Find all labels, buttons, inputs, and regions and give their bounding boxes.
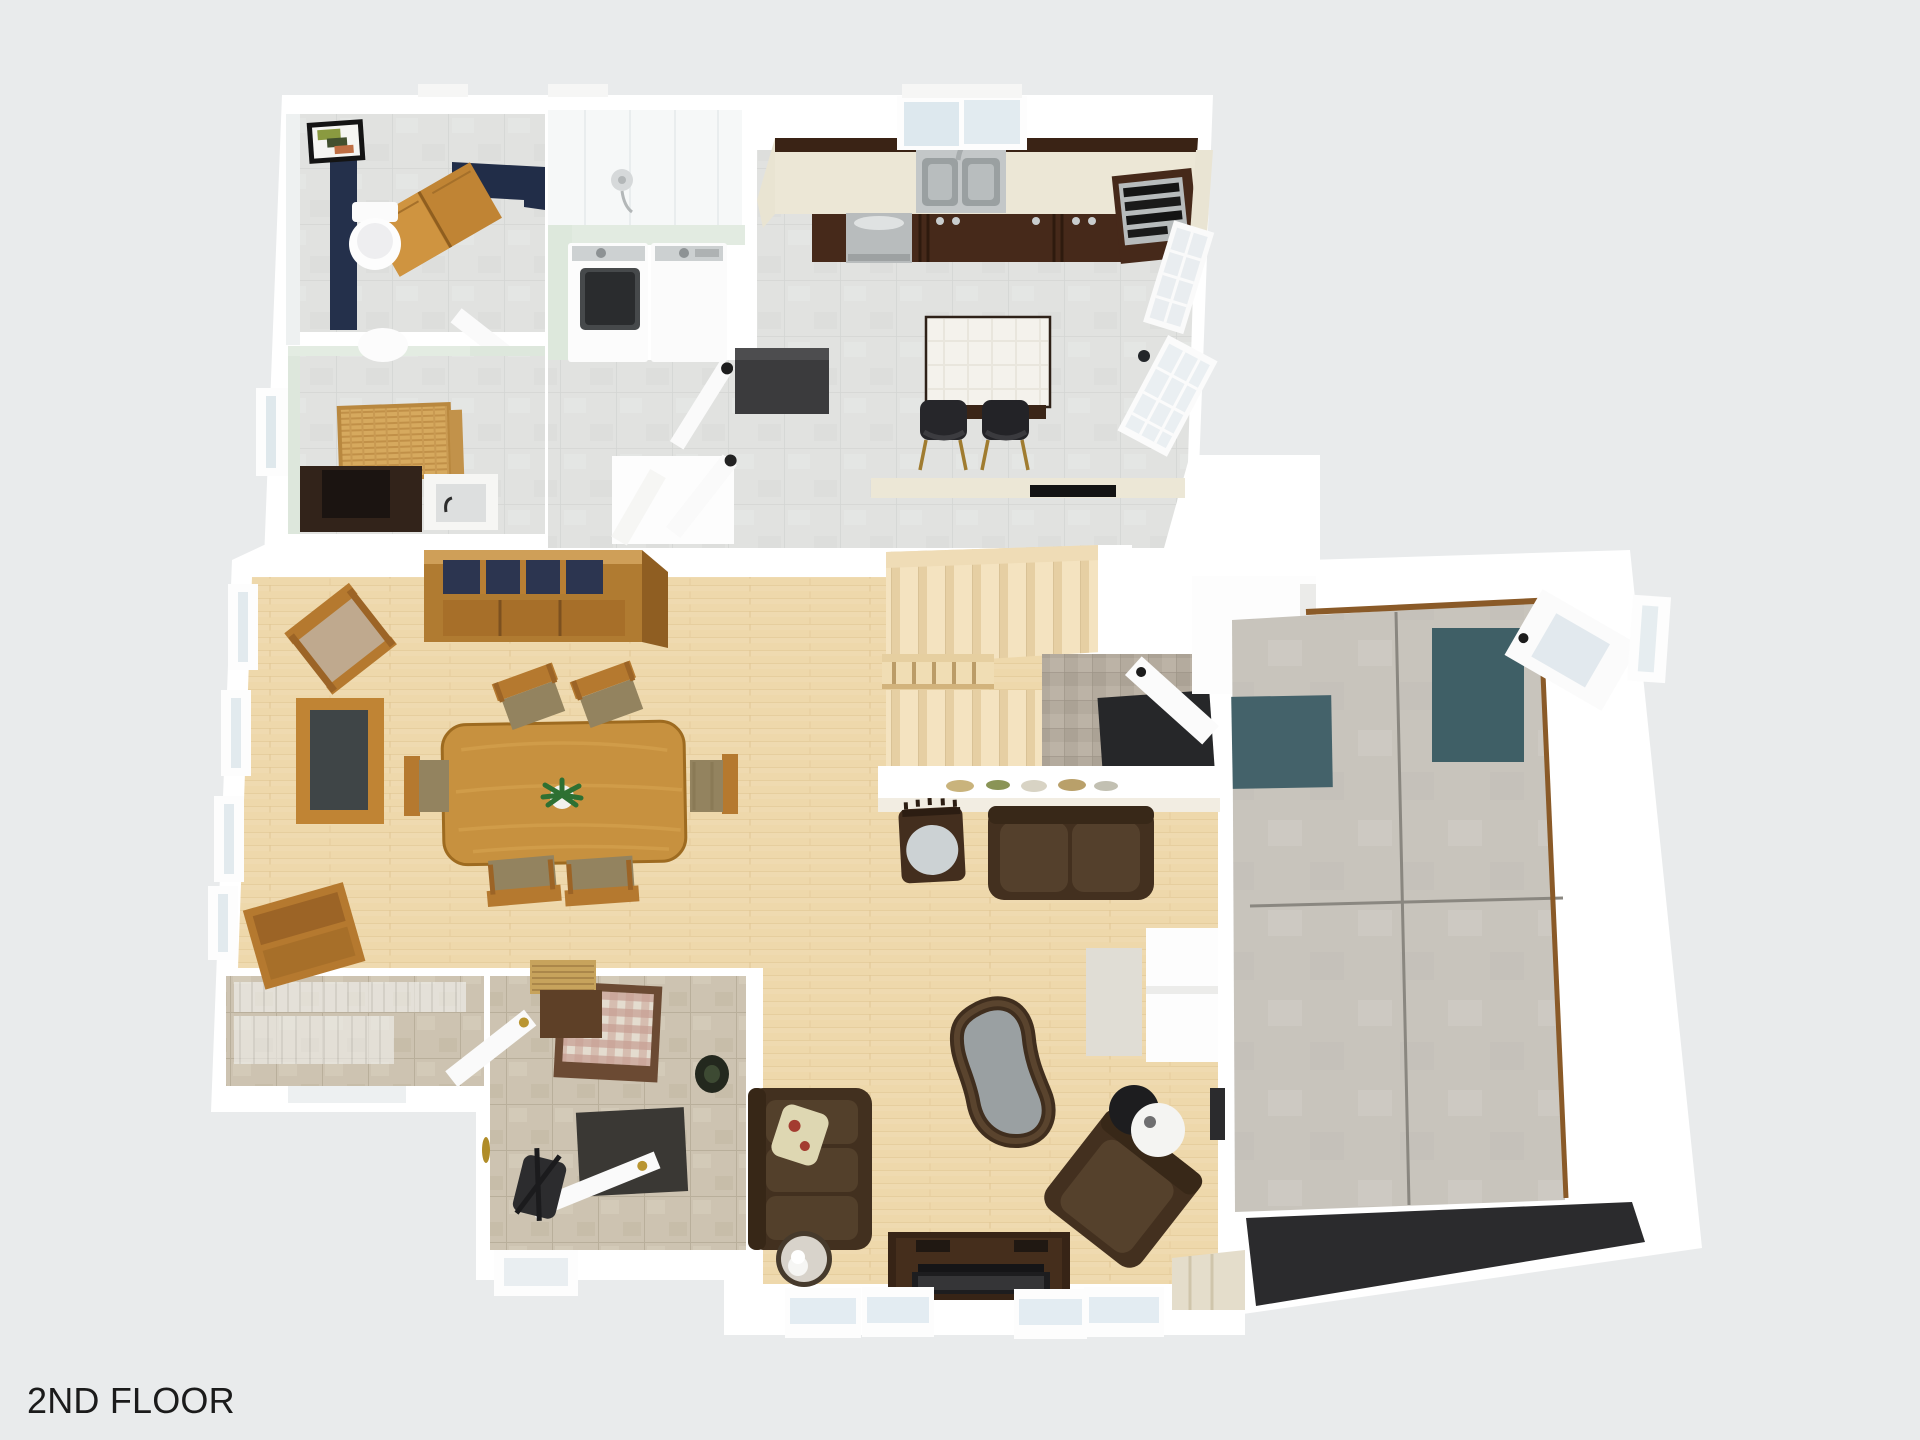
svg-text:2ND FLOOR: 2ND FLOOR bbox=[27, 1380, 235, 1421]
